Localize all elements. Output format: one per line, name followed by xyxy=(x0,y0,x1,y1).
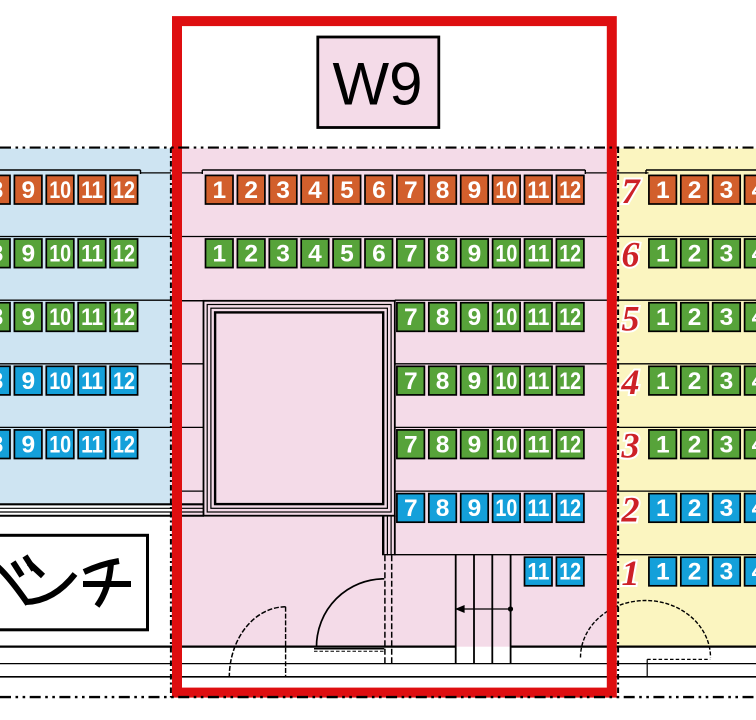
svg-text:4: 4 xyxy=(752,177,756,204)
svg-text:9: 9 xyxy=(21,431,35,458)
svg-text:9: 9 xyxy=(21,368,35,395)
svg-text:7: 7 xyxy=(404,368,418,395)
svg-text:W9: W9 xyxy=(333,51,423,118)
svg-text:11: 11 xyxy=(81,368,103,395)
svg-text:8: 8 xyxy=(0,177,3,204)
svg-text:10: 10 xyxy=(495,368,517,395)
svg-text:11: 11 xyxy=(527,368,549,395)
svg-text:11: 11 xyxy=(81,241,103,268)
svg-text:8: 8 xyxy=(436,241,450,268)
svg-text:12: 12 xyxy=(113,241,135,268)
svg-text:2: 2 xyxy=(688,431,702,458)
svg-text:3: 3 xyxy=(720,431,734,458)
svg-text:2: 2 xyxy=(688,495,702,522)
svg-text:6: 6 xyxy=(372,177,386,204)
svg-text:1: 1 xyxy=(656,368,670,395)
svg-text:3: 3 xyxy=(720,304,734,331)
svg-text:12: 12 xyxy=(559,304,581,331)
svg-text:12: 12 xyxy=(559,177,581,204)
svg-text:7: 7 xyxy=(404,304,418,331)
svg-text:4: 4 xyxy=(752,495,756,522)
svg-text:5: 5 xyxy=(340,241,354,268)
svg-text:8: 8 xyxy=(0,304,3,331)
svg-text:8: 8 xyxy=(436,495,450,522)
svg-text:11: 11 xyxy=(527,495,549,522)
svg-text:12: 12 xyxy=(113,368,135,395)
svg-text:1: 1 xyxy=(656,241,670,268)
svg-text:12: 12 xyxy=(559,431,581,458)
svg-text:6: 6 xyxy=(622,235,640,275)
svg-text:4: 4 xyxy=(752,368,756,395)
svg-text:12: 12 xyxy=(559,495,581,522)
svg-text:3: 3 xyxy=(621,426,640,466)
svg-text:3: 3 xyxy=(720,495,734,522)
svg-text:10: 10 xyxy=(495,431,517,458)
svg-text:11: 11 xyxy=(527,559,549,586)
svg-text:2: 2 xyxy=(688,368,702,395)
svg-text:2: 2 xyxy=(621,489,640,529)
svg-text:12: 12 xyxy=(113,177,135,204)
svg-text:2: 2 xyxy=(688,241,702,268)
svg-text:1: 1 xyxy=(656,495,670,522)
svg-text:1: 1 xyxy=(622,553,640,593)
svg-text:5: 5 xyxy=(622,298,640,338)
svg-text:9: 9 xyxy=(21,304,35,331)
svg-text:11: 11 xyxy=(81,177,103,204)
svg-text:8: 8 xyxy=(436,431,450,458)
svg-text:1: 1 xyxy=(212,177,226,204)
svg-text:4: 4 xyxy=(308,177,322,204)
svg-text:8: 8 xyxy=(436,368,450,395)
svg-text:11: 11 xyxy=(81,431,103,458)
svg-text:7: 7 xyxy=(404,177,418,204)
svg-text:4: 4 xyxy=(621,362,640,402)
svg-text:12: 12 xyxy=(559,241,581,268)
svg-text:3: 3 xyxy=(720,368,734,395)
svg-text:9: 9 xyxy=(468,431,482,458)
svg-text:4: 4 xyxy=(308,241,322,268)
svg-text:1: 1 xyxy=(656,431,670,458)
svg-text:1: 1 xyxy=(656,177,670,204)
svg-text:4: 4 xyxy=(752,559,756,586)
svg-text:10: 10 xyxy=(495,241,517,268)
svg-text:10: 10 xyxy=(495,304,517,331)
svg-text:3: 3 xyxy=(720,241,734,268)
svg-text:12: 12 xyxy=(559,368,581,395)
svg-text:10: 10 xyxy=(49,241,71,268)
svg-text:10: 10 xyxy=(49,431,71,458)
svg-text:12: 12 xyxy=(113,431,135,458)
svg-text:8: 8 xyxy=(436,177,450,204)
svg-text:2: 2 xyxy=(688,559,702,586)
svg-text:9: 9 xyxy=(468,368,482,395)
svg-text:8: 8 xyxy=(0,431,3,458)
svg-text:5: 5 xyxy=(340,177,354,204)
svg-text:2: 2 xyxy=(688,177,702,204)
svg-text:7: 7 xyxy=(404,241,418,268)
svg-text:11: 11 xyxy=(527,431,549,458)
svg-text:1: 1 xyxy=(212,241,226,268)
svg-text:3: 3 xyxy=(720,177,734,204)
svg-text:3: 3 xyxy=(276,241,290,268)
svg-text:4: 4 xyxy=(752,304,756,331)
svg-text:8: 8 xyxy=(0,241,3,268)
svg-text:11: 11 xyxy=(527,241,549,268)
svg-text:10: 10 xyxy=(495,177,517,204)
svg-text:11: 11 xyxy=(81,304,103,331)
svg-text:9: 9 xyxy=(468,304,482,331)
svg-text:12: 12 xyxy=(559,559,581,586)
svg-text:10: 10 xyxy=(49,177,71,204)
svg-text:7: 7 xyxy=(404,495,418,522)
svg-text:9: 9 xyxy=(21,241,35,268)
svg-text:9: 9 xyxy=(21,177,35,204)
svg-text:9: 9 xyxy=(468,241,482,268)
svg-text:12: 12 xyxy=(113,304,135,331)
svg-text:10: 10 xyxy=(495,495,517,522)
svg-text:7: 7 xyxy=(404,431,418,458)
svg-text:4: 4 xyxy=(752,241,756,268)
svg-text:3: 3 xyxy=(720,559,734,586)
svg-text:8: 8 xyxy=(436,304,450,331)
svg-text:1: 1 xyxy=(656,559,670,586)
svg-text:1: 1 xyxy=(656,304,670,331)
svg-text:4: 4 xyxy=(752,431,756,458)
svg-text:2: 2 xyxy=(688,304,702,331)
svg-text:6: 6 xyxy=(372,241,386,268)
svg-text:9: 9 xyxy=(468,177,482,204)
svg-text:2: 2 xyxy=(244,177,258,204)
svg-text:11: 11 xyxy=(527,177,549,204)
svg-text:10: 10 xyxy=(49,304,71,331)
svg-text:2: 2 xyxy=(244,241,258,268)
svg-text:7: 7 xyxy=(622,171,642,211)
svg-text:9: 9 xyxy=(468,495,482,522)
svg-text:10: 10 xyxy=(49,368,71,395)
svg-text:11: 11 xyxy=(527,304,549,331)
svg-text:8: 8 xyxy=(0,368,3,395)
svg-text:3: 3 xyxy=(276,177,290,204)
